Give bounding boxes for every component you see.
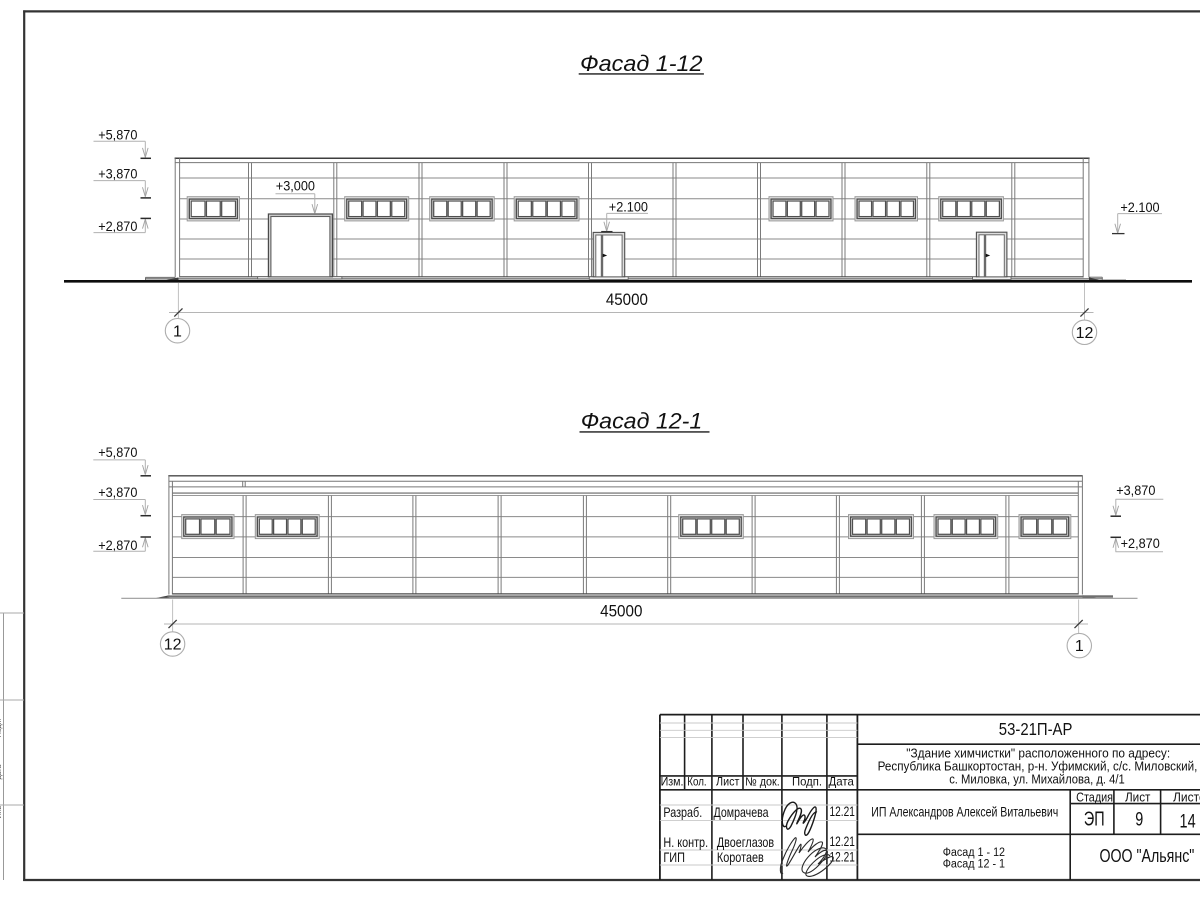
svg-text:Изм.: Изм.: [661, 774, 684, 788]
svg-text:ЭП: ЭП: [1084, 809, 1105, 831]
svg-text:Фасад 1 - 12: Фасад 1 - 12: [943, 847, 1005, 859]
svg-text:53-21П-АР: 53-21П-АР: [999, 719, 1073, 739]
svg-text:Стадия: Стадия: [1076, 790, 1113, 804]
svg-text:Дата: Дата: [829, 774, 855, 788]
svg-text:Лист: Лист: [1125, 790, 1151, 804]
svg-text:Лист: Лист: [716, 774, 740, 788]
svg-text:с. Миловка, ул. Михайлова, д.: с. Миловка, ул. Михайлова, д. 4/1: [949, 773, 1125, 787]
svg-text:Республика Башкортостан, р-н.: Республика Башкортостан, р-н. Уфимский, …: [878, 760, 1198, 774]
svg-text:Подп.: Подп.: [0, 719, 3, 738]
svg-text:Двоеглазов: Двоеглазов: [717, 834, 774, 850]
svg-text:45000: 45000: [600, 603, 642, 621]
svg-text:+2,870: +2,870: [98, 538, 138, 553]
svg-text:Коротаев: Коротаев: [717, 849, 764, 865]
svg-text:Кол.: Кол.: [687, 774, 706, 788]
svg-text:Фасад 1-12: Фасад 1-12: [580, 51, 703, 76]
svg-text:Фасад 12-1: Фасад 12-1: [581, 409, 703, 434]
svg-text:дата: дата: [0, 764, 3, 779]
svg-text:+2.100: +2.100: [1120, 200, 1160, 215]
svg-text:ГИП: ГИП: [663, 849, 685, 865]
svg-text:ИП Александров Алексей Виталье: ИП Александров Алексей Витальевич: [871, 804, 1058, 819]
svg-text:+3,870: +3,870: [98, 485, 138, 500]
svg-text:12.21: 12.21: [830, 848, 855, 864]
svg-text:1: 1: [173, 323, 182, 340]
svg-text:Н. контр.: Н. контр.: [663, 834, 708, 850]
svg-text:12.21: 12.21: [830, 833, 855, 849]
svg-text:+2,870: +2,870: [98, 219, 138, 234]
svg-text:12: 12: [164, 637, 182, 654]
svg-text:12.21: 12.21: [830, 803, 855, 819]
svg-text:14: 14: [1180, 812, 1196, 833]
svg-text:Подп.: Подп.: [792, 774, 822, 788]
svg-text:Листов: Листов: [1173, 790, 1200, 804]
svg-text:"Здание химчистки" расположенн: "Здание химчистки" расположенного по адр…: [906, 746, 1170, 760]
svg-text:+3,870: +3,870: [98, 167, 138, 182]
svg-text:9: 9: [1135, 810, 1143, 831]
svg-text:Фасад 12 - 1: Фасад 12 - 1: [943, 858, 1005, 870]
svg-text:+2.100: +2.100: [609, 199, 649, 214]
svg-text:12: 12: [1076, 325, 1094, 342]
svg-text:Домрачева: Домрачева: [714, 804, 769, 820]
svg-text:Инв: Инв: [0, 805, 3, 818]
svg-text:1: 1: [1075, 638, 1084, 655]
svg-text:45000: 45000: [606, 291, 648, 309]
svg-text:+3,000: +3,000: [276, 178, 316, 193]
svg-text:+2,870: +2,870: [1121, 536, 1161, 551]
svg-text:+3,870: +3,870: [1116, 483, 1156, 498]
svg-text:+5,870: +5,870: [98, 127, 138, 142]
svg-text:+5,870: +5,870: [98, 445, 138, 460]
svg-text:№ док.: № док.: [745, 774, 780, 788]
svg-text:ООО "Альянс": ООО "Альянс": [1099, 845, 1194, 866]
svg-text:Разраб.: Разраб.: [663, 804, 702, 820]
